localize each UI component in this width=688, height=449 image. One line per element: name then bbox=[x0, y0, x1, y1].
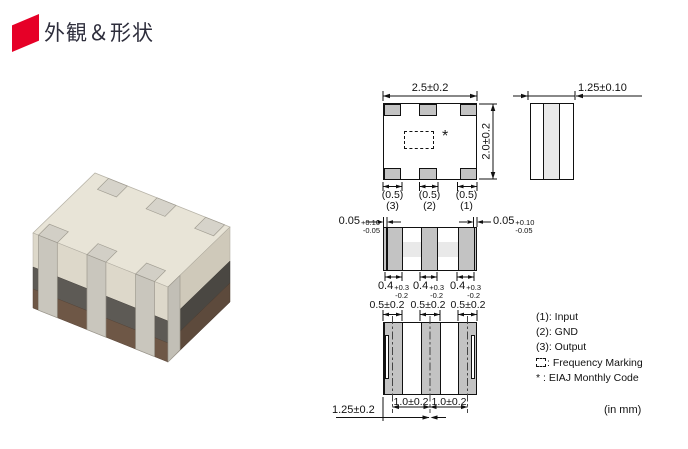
unit-note: (in mm) bbox=[604, 404, 641, 417]
page: 外観＆形状 * bbox=[0, 0, 688, 449]
dim-terminal: 0.4+0.3-0.2 bbox=[445, 280, 486, 300]
dim-edge-tolerance-left: 0.05+0.10-0.05 bbox=[326, 215, 380, 235]
legend-item-input: (1): Input bbox=[536, 311, 578, 323]
page-title: 外観＆形状 bbox=[44, 17, 154, 47]
frequency-marking-icon bbox=[536, 358, 546, 367]
section-marker-icon bbox=[12, 14, 39, 52]
dim-half-width: 1.25±0.2 bbox=[332, 404, 375, 417]
dim-edge-tolerance-right: 0.05+0.10-0.05 bbox=[493, 215, 534, 235]
dim-top-width: 2.5±0.2 bbox=[400, 82, 460, 95]
legend-item-gnd: (2): GND bbox=[536, 326, 578, 338]
pin-number: (1) bbox=[448, 200, 485, 212]
dim-pitch: 1.0±0.2 bbox=[427, 396, 471, 408]
pin-number: (2) bbox=[411, 200, 448, 212]
component-photo bbox=[28, 152, 240, 372]
dim-top-height: 2.0±0.2 bbox=[481, 111, 494, 171]
pin-number: (3) bbox=[374, 200, 411, 212]
dim-terminal-width: 0.5±0.2 bbox=[446, 299, 490, 311]
dim-side-width: 1.25±0.10 bbox=[578, 82, 627, 95]
legend-item-eiaj-code: * : EIAJ Monthly Code bbox=[536, 372, 639, 384]
legend-item-output: (3): Output bbox=[536, 341, 586, 353]
dim-terminal: 0.4+0.3-0.2 bbox=[408, 280, 449, 300]
legend-item-frequency-marking: : Frequency Marking bbox=[536, 357, 643, 369]
dim-terminal-width: 0.5±0.2 bbox=[365, 299, 409, 311]
dim-terminal-width: 0.5±0.2 bbox=[406, 299, 450, 311]
